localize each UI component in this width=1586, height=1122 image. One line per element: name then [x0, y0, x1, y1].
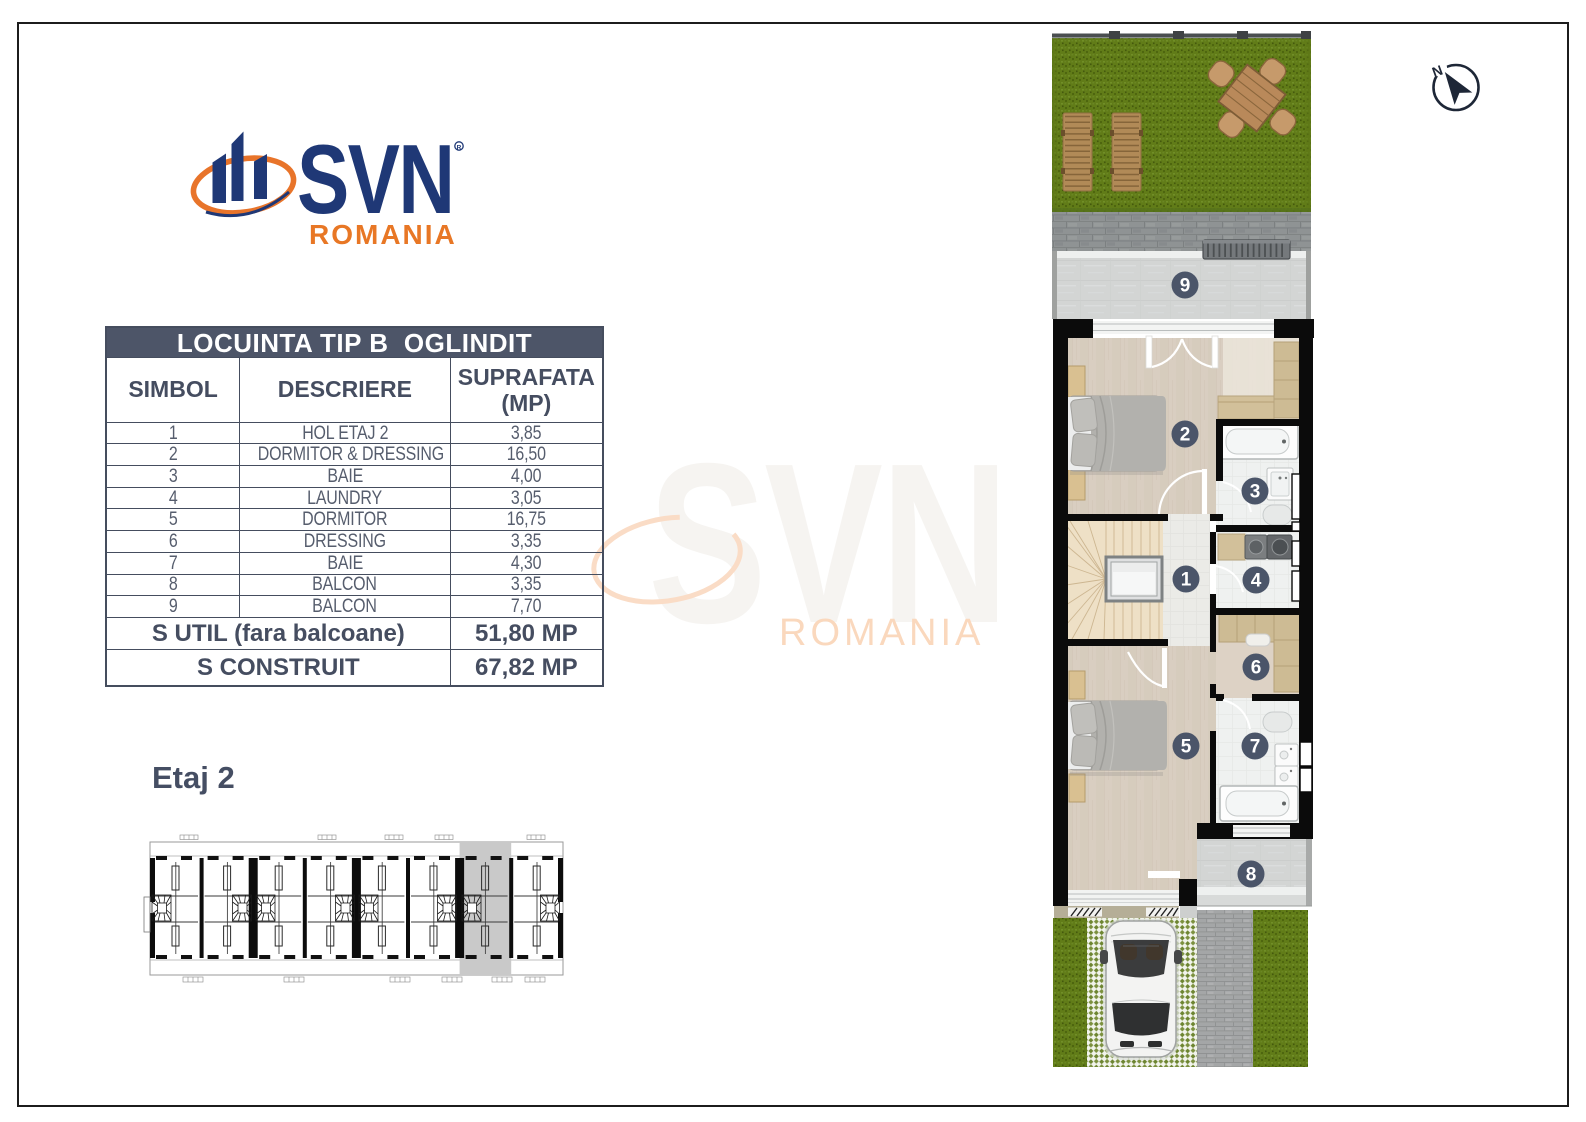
svg-text:5: 5	[1181, 737, 1192, 758]
svg-text:SVN: SVN	[297, 125, 453, 234]
svg-text:9: 9	[1180, 276, 1191, 297]
svg-text:ROMANIA: ROMANIA	[309, 219, 457, 250]
svg-text:8: 8	[1246, 865, 1257, 886]
svg-text:ROMANIA: ROMANIA	[779, 612, 984, 654]
svg-text:1: 1	[1181, 570, 1192, 591]
svg-text:4: 4	[1251, 571, 1262, 592]
svg-text:7: 7	[1250, 737, 1261, 758]
svg-text:6: 6	[1251, 658, 1262, 679]
svg-text:R: R	[457, 145, 462, 152]
svg-text:3: 3	[1250, 482, 1261, 503]
svg-text:2: 2	[1180, 425, 1191, 446]
